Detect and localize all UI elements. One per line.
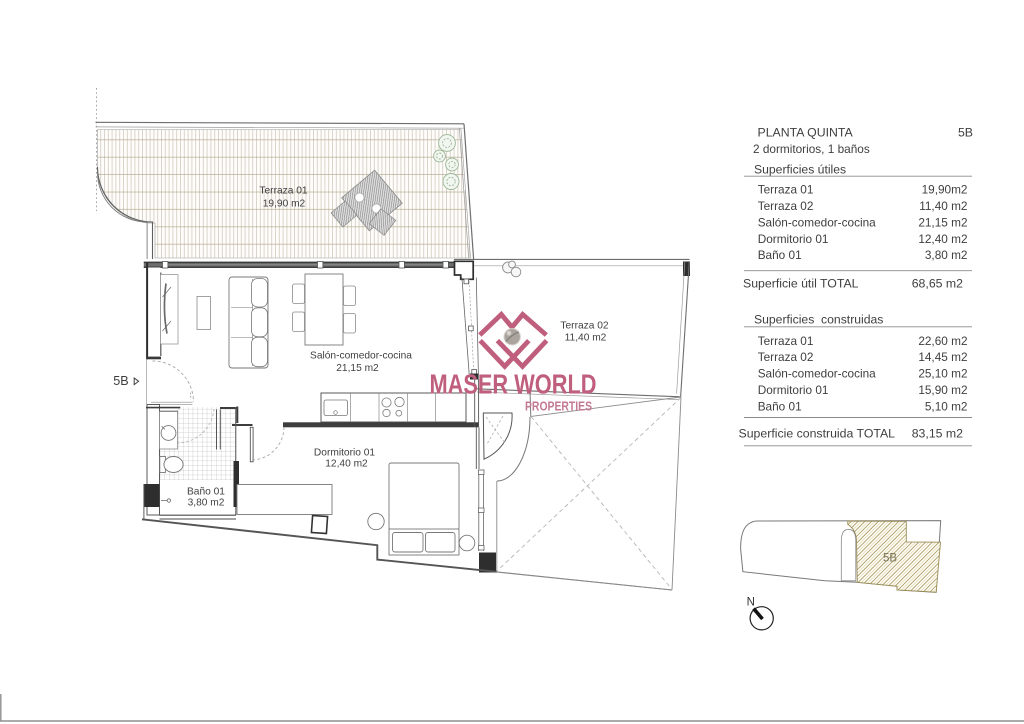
svg-text:12,40 m2: 12,40 m2 [918, 232, 967, 246]
svg-text:Baño 01: Baño 01 [758, 399, 802, 413]
svg-text:Superficie útil TOTAL: Superficie útil TOTAL [743, 277, 859, 291]
svg-text:11,40 m2: 11,40 m2 [565, 333, 607, 344]
svg-text:25,10 m2: 25,10 m2 [918, 367, 967, 381]
svg-text:Terraza 01: Terraza 01 [758, 334, 814, 348]
svg-text:5B: 5B [113, 374, 128, 388]
svg-text:2 dormitorios, 1 baños: 2 dormitorios, 1 baños [753, 142, 870, 156]
svg-text:19,90 m2: 19,90 m2 [263, 199, 306, 210]
svg-text:5B: 5B [958, 125, 973, 139]
svg-text:Terraza 02: Terraza 02 [758, 199, 814, 213]
svg-text:68,65 m2: 68,65 m2 [912, 277, 963, 291]
svg-text:21,15 m2: 21,15 m2 [918, 215, 967, 229]
svg-text:22,60 m2: 22,60 m2 [918, 334, 967, 348]
svg-text:12,40 m2: 12,40 m2 [325, 459, 368, 470]
svg-text:Terraza 02: Terraza 02 [758, 350, 814, 364]
svg-text:Dormitorio 01: Dormitorio 01 [758, 232, 829, 246]
svg-text:19,90m2: 19,90m2 [922, 183, 968, 197]
svg-text:3,80 m2: 3,80 m2 [188, 498, 225, 509]
svg-text:PROPERTIES: PROPERTIES [525, 399, 592, 414]
svg-text:Dormitorio 01: Dormitorio 01 [758, 383, 829, 397]
svg-text:15,90 m2: 15,90 m2 [918, 383, 967, 397]
svg-text:83,15 m2: 83,15 m2 [912, 427, 963, 441]
svg-text:5,10 m2: 5,10 m2 [925, 399, 968, 413]
svg-text:14,45 m2: 14,45 m2 [918, 350, 967, 364]
svg-text:Terraza 01: Terraza 01 [758, 183, 814, 197]
svg-text:MASER WORLD: MASER WORLD [430, 369, 597, 400]
svg-text:Dormitorio 01: Dormitorio 01 [314, 448, 375, 459]
svg-text:Salón-comedor-cocina: Salón-comedor-cocina [758, 367, 876, 381]
svg-text:N: N [747, 597, 755, 609]
svg-text:Salón-comedor-cocina: Salón-comedor-cocina [758, 215, 876, 229]
svg-text:Superficies construidas: Superficies construidas [754, 313, 883, 327]
svg-text:Baño 01: Baño 01 [187, 487, 225, 498]
svg-text:3,80 m2: 3,80 m2 [925, 248, 968, 262]
svg-text:Superficie construida TOTAL: Superficie construida TOTAL [739, 427, 896, 441]
svg-text:11,40 m2: 11,40 m2 [919, 199, 967, 213]
svg-text:PLANTA QUINTA: PLANTA QUINTA [758, 125, 854, 139]
svg-text:Terraza 01: Terraza 01 [259, 186, 307, 197]
svg-text:21,15 m2: 21,15 m2 [336, 363, 379, 374]
svg-text:Superficies útiles: Superficies útiles [754, 162, 846, 176]
svg-text:Salón-comedor-cocina: Salón-comedor-cocina [310, 351, 412, 362]
svg-text:Baño 01: Baño 01 [758, 248, 802, 262]
svg-text:Terraza 02: Terraza 02 [560, 321, 608, 332]
svg-text:5B: 5B [883, 553, 897, 565]
